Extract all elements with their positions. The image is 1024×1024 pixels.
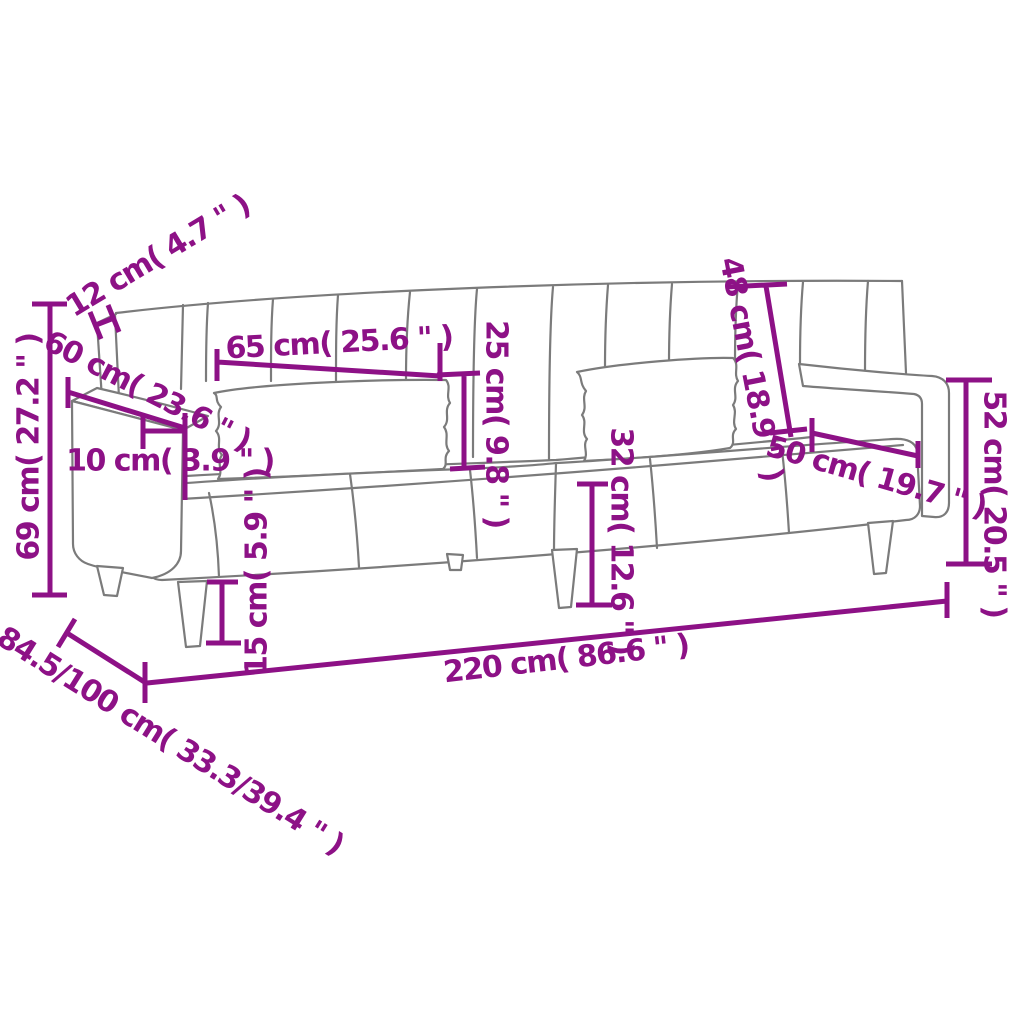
armrest-left-face (72, 401, 183, 578)
backrest-seam (549, 287, 553, 459)
backrest-seam (800, 282, 803, 364)
leg-back-middle (447, 554, 463, 570)
leg-front-right (868, 521, 893, 574)
dim-label-armrest-height-left: 69 cm( 27.2 " ) (12, 333, 47, 560)
leg-front-middle (552, 549, 577, 608)
dim-label-armrest-height-right: 52 cm( 20.5 " ) (977, 390, 1012, 617)
backrest-right-edge (902, 281, 906, 373)
leg-front-left (178, 581, 207, 647)
dim-label-cushion-height: 25 cm( 9.8 " ) (479, 320, 514, 528)
leg-back-left (97, 566, 123, 596)
backrest-left-edge (181, 305, 183, 389)
dim-label-seat-height: 32 cm( 12.6 " ) (604, 427, 639, 654)
backrest-seam (669, 284, 672, 365)
pillow-right (577, 358, 738, 461)
dimension-diagram: 12 cm( 4.7 " ) 60 cm( 23.6 " ) 10 cm( 3.… (0, 0, 1024, 1024)
backrest-seam (605, 285, 608, 368)
backrest-seam (865, 281, 868, 372)
dim-label-leg-height: 15 cm( 5.9 " ) (240, 468, 275, 676)
backrest-seam (206, 303, 208, 381)
dim-line-leg-height (206, 582, 241, 643)
